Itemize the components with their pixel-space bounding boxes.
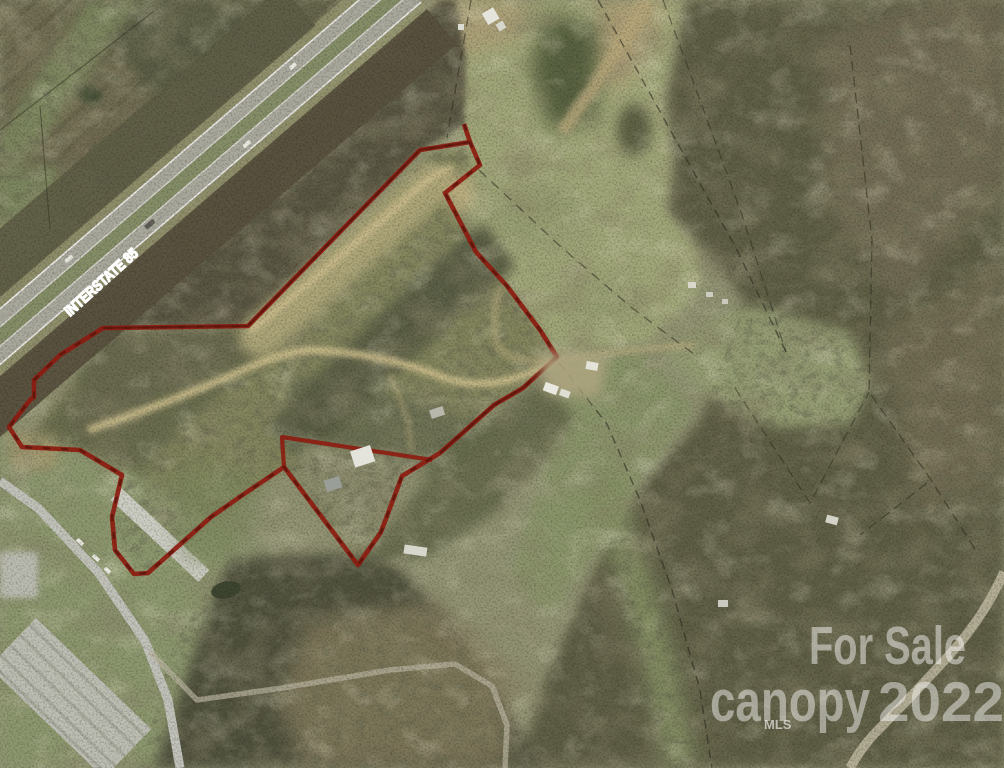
svg-text:2022: 2022 [878,670,1004,733]
svg-text:For Sale: For Sale [809,616,966,676]
svg-text:MLS: MLS [764,717,792,732]
